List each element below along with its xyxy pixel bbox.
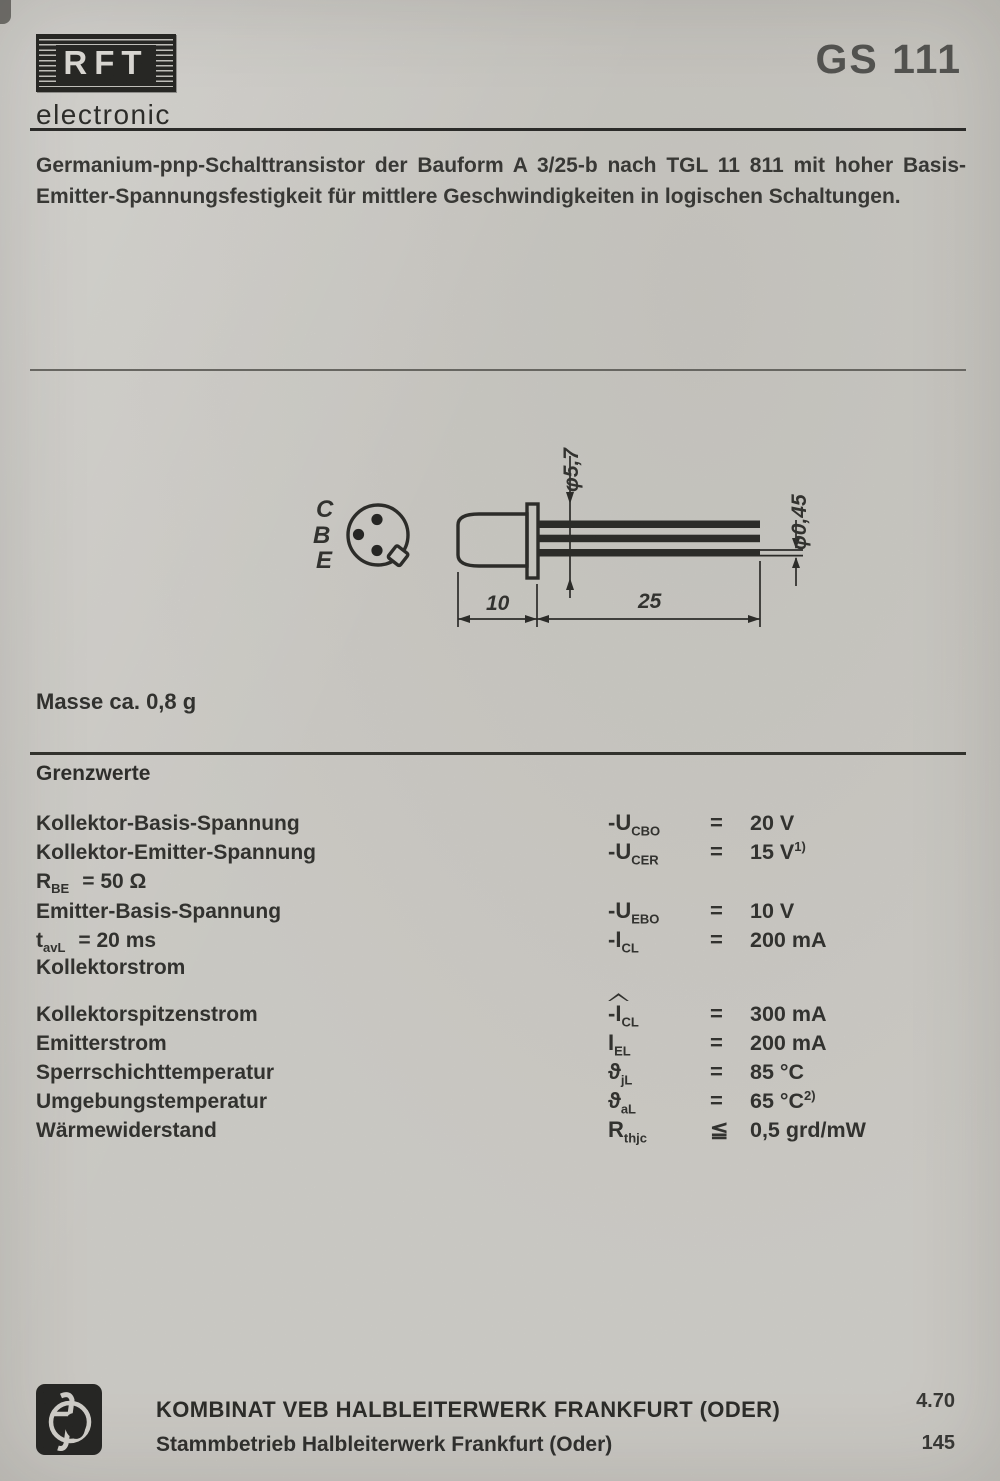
limit-relation: = <box>710 810 750 836</box>
limit-relation: = <box>710 898 750 924</box>
arrowhead-icon <box>566 492 574 504</box>
limit-label: Emitter-Basis-Spannung <box>36 900 608 926</box>
datasheet-page: RFT electronic GS 111 Germanium-pnp-Scha… <box>0 0 1000 1481</box>
pin-dot-e <box>371 545 382 556</box>
limit-row: Kollektor-Emitter-Spannung -UCER = 15 V1… <box>36 839 966 868</box>
arrowhead-icon <box>566 578 574 590</box>
hfo-logo <box>36 1384 102 1455</box>
limit-symbol: -ICL <box>608 1001 710 1029</box>
limit-symbol <box>608 868 710 894</box>
limit-symbol: ϑaL <box>608 1088 710 1116</box>
part-number: GS 111 <box>815 36 962 83</box>
divider <box>30 128 966 131</box>
arrowhead-icon <box>458 615 470 623</box>
paper-grain-overlay <box>0 0 1000 1481</box>
limit-label: Kollektorstrom <box>36 956 608 982</box>
limit-relation: ≦ <box>710 1117 750 1143</box>
description-line: Emitter-Spannungsfestigkeit für mittlere… <box>36 181 966 212</box>
dim-label: 25 <box>637 590 662 613</box>
divider <box>30 369 966 371</box>
limits-title: Grenzwerte <box>36 762 966 786</box>
limit-symbol: ϑjL <box>608 1059 710 1087</box>
limit-label: Kollektor-Emitter-Spannung <box>36 841 608 867</box>
limit-relation: = <box>710 1030 750 1056</box>
limit-symbol: -ICL <box>608 927 710 955</box>
limit-value: 200 mA <box>750 927 827 953</box>
limit-row: Sperrschichttemperatur ϑjL = 85 °C <box>36 1059 966 1088</box>
footer: KOMBINAT VEB HALBLEITERWERK FRANKFURT (O… <box>36 1384 780 1457</box>
limit-value: 0,5 grd/mW <box>750 1117 866 1143</box>
page-number: 145 <box>922 1432 955 1455</box>
lead-bar <box>538 535 760 543</box>
limit-row: Emitterstrom IEL = 200 mA <box>36 1030 966 1059</box>
limit-value: 20 V <box>750 810 794 836</box>
limit-label: Emitterstrom <box>36 1032 608 1058</box>
limit-row: Emitter-Basis-Spannung -UEBO = 10 V <box>36 898 966 927</box>
arrowhead-icon <box>792 557 800 568</box>
side-view <box>458 504 803 578</box>
limit-row: RBE= 50 Ω <box>36 868 966 894</box>
arrowhead-icon <box>748 615 760 623</box>
lead-bar <box>538 549 760 557</box>
limit-relation: = <box>710 1001 750 1027</box>
dim-label: 10 <box>486 592 510 615</box>
company-name: KOMBINAT VEB HALBLEITERWERK FRANKFURT (O… <box>156 1397 780 1423</box>
limits-section: Grenzwerte Kollektor-Basis-Spannung -UCB… <box>36 762 966 1146</box>
transistor-flange <box>527 504 538 578</box>
limit-value: 10 V <box>750 898 794 924</box>
company-subline: Stammbetrieb Halbleiterwerk Frankfurt (O… <box>156 1433 780 1457</box>
limit-label: Wärmewiderstand <box>36 1119 608 1145</box>
limit-value: 15 V1) <box>750 839 806 865</box>
arrowhead-icon <box>525 615 537 623</box>
transistor-body <box>458 514 527 566</box>
package-drawing: C B E φ5,7 <box>0 426 1000 661</box>
scan-corner-mark <box>0 0 11 24</box>
limit-value: 200 mA <box>750 1030 827 1056</box>
date-code: 4.70 <box>916 1390 955 1413</box>
limit-label: Umgebungstemperatur <box>36 1090 608 1116</box>
rft-logo: RFT electronic <box>36 34 176 131</box>
limit-symbol: -UCER <box>608 839 710 867</box>
pinout-view: C B E <box>313 496 409 574</box>
pin-label-c: C <box>316 496 334 523</box>
limit-symbol: -UEBO <box>608 898 710 926</box>
limit-row: Kollektor-Basis-Spannung -UCBO = 20 V <box>36 810 966 839</box>
limit-value: 85 °C <box>750 1059 804 1085</box>
limits-rows: Kollektor-Basis-Spannung -UCBO = 20 V Ko… <box>36 810 966 1146</box>
arrowhead-icon <box>537 615 549 623</box>
limit-symbol: Rthjc <box>608 1117 710 1145</box>
pin-dot-b <box>353 529 364 540</box>
limit-relation: = <box>710 839 750 865</box>
rft-logo-text: RFT <box>56 45 155 82</box>
limit-row: Kollektorspitzenstrom -ICL = 300 mA <box>36 1001 966 1030</box>
description: Germanium-pnp-Schalttransistor der Baufo… <box>36 150 966 212</box>
description-line: Germanium-pnp-Schalttransistor der Baufo… <box>36 150 966 181</box>
limit-value: 65 °C2) <box>750 1088 816 1114</box>
pin-dot-c <box>371 514 382 525</box>
limit-symbol: -UCBO <box>608 810 710 838</box>
limit-row: Kollektorstrom <box>36 956 966 985</box>
limit-label: tavL= 20 ms <box>36 929 608 955</box>
limit-label: Kollektorspitzenstrom <box>36 1003 608 1029</box>
peak-hat-icon <box>608 993 629 1001</box>
lead-bar <box>538 521 760 529</box>
dim-lengths: 10 25 <box>458 561 760 627</box>
footer-text: KOMBINAT VEB HALBLEITERWERK FRANKFURT (O… <box>156 1384 780 1457</box>
limit-row: tavL= 20 ms -ICL = 200 mA <box>36 927 966 956</box>
limit-label: RBE= 50 Ω <box>36 870 608 896</box>
dim-label: φ0,45 <box>788 494 811 550</box>
limit-relation: = <box>710 1088 750 1114</box>
rft-logo-box: RFT <box>36 34 176 92</box>
limit-label: Sperrschichttemperatur <box>36 1061 608 1087</box>
mass-note: Masse ca. 0,8 g <box>36 689 196 715</box>
pin-label-e: E <box>316 547 333 574</box>
brand-subtitle: electronic <box>36 99 176 131</box>
dim-label: φ5,7 <box>560 447 583 492</box>
divider <box>30 752 966 755</box>
pin-label-b: B <box>313 522 330 549</box>
limit-value: 300 mA <box>750 1001 827 1027</box>
limit-relation: = <box>710 927 750 953</box>
limit-row: Umgebungstemperatur ϑaL = 65 °C2) <box>36 1088 966 1117</box>
limit-row: Wärmewiderstand Rthjc ≦ 0,5 grd/mW <box>36 1117 966 1146</box>
limit-symbol: IEL <box>608 1030 710 1058</box>
dim-lead-diameter: φ0,45 <box>788 494 811 586</box>
limit-relation: = <box>710 1059 750 1085</box>
limit-label: Kollektor-Basis-Spannung <box>36 812 608 838</box>
